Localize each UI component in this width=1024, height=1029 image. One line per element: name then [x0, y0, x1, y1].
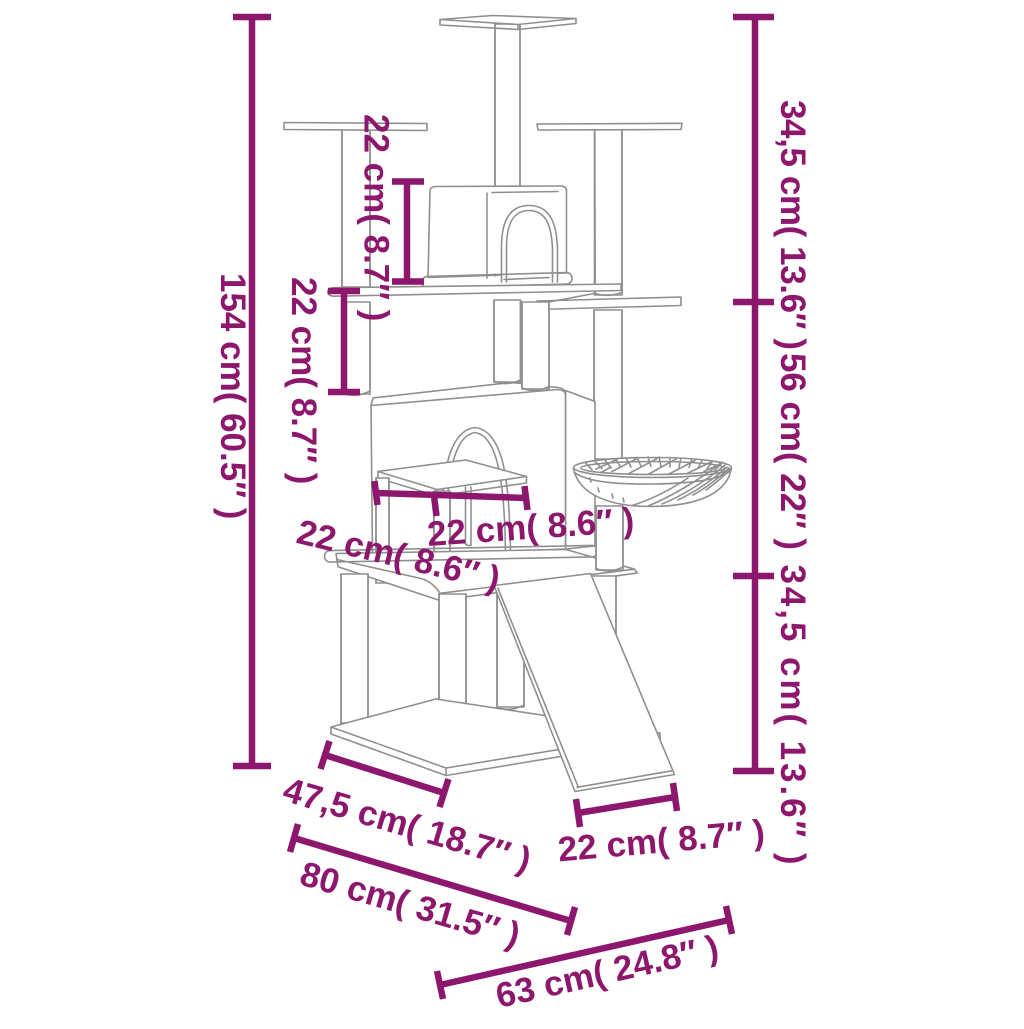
- svg-text:34,5 cm( 13.6″ ): 34,5 cm( 13.6″ ): [773, 565, 812, 865]
- svg-text:56 cm( 22″ ): 56 cm( 22″ ): [773, 353, 812, 550]
- svg-text:154 cm( 60.5″ ): 154 cm( 60.5″ ): [213, 273, 252, 519]
- svg-text:22 cm( 8.7″ ): 22 cm( 8.7″ ): [357, 114, 396, 321]
- svg-text:22 cm( 8.7″ ): 22 cm( 8.7″ ): [284, 277, 323, 484]
- svg-text:34,5 cm( 13.6″ ): 34,5 cm( 13.6″ ): [773, 100, 812, 350]
